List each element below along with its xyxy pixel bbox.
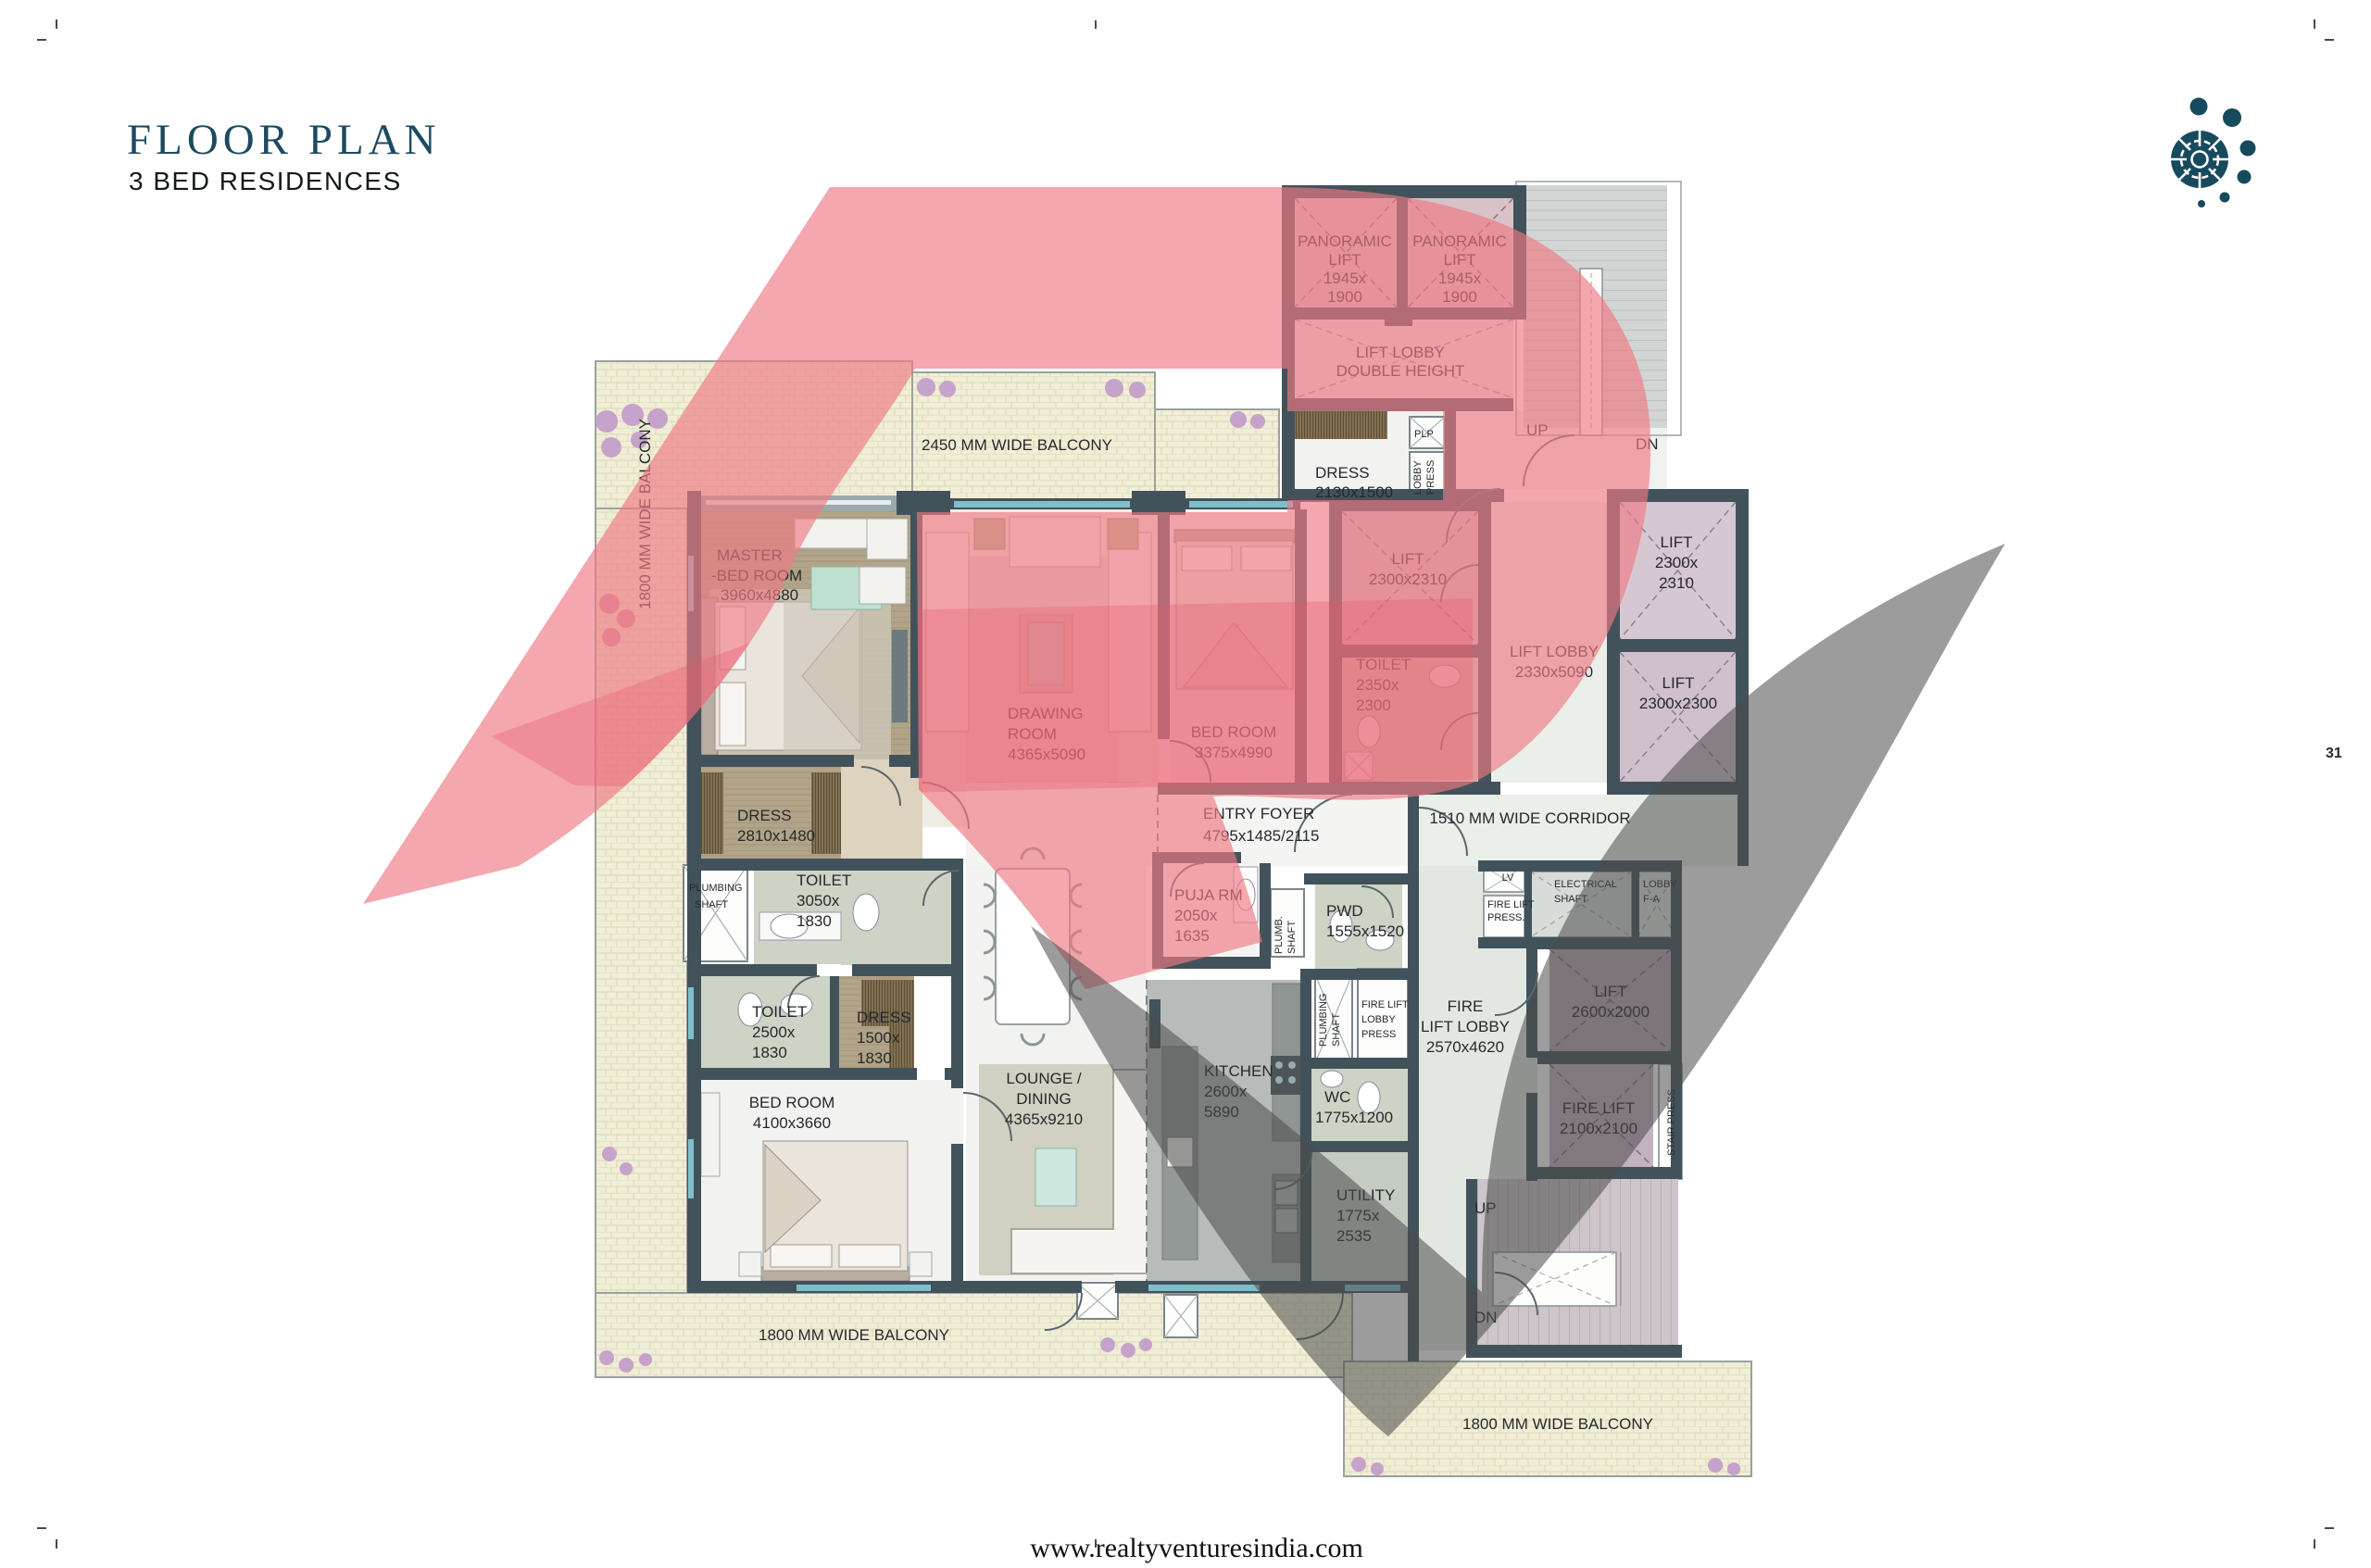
- svg-text:LOBBY: LOBBY: [1361, 1014, 1396, 1025]
- svg-text:2810x1480: 2810x1480: [737, 827, 815, 845]
- svg-text:PWD: PWD: [1326, 902, 1363, 920]
- svg-text:1500x: 1500x: [857, 1029, 900, 1047]
- svg-text:2570x4620: 2570x4620: [1426, 1038, 1504, 1056]
- svg-text:3050x: 3050x: [797, 892, 840, 909]
- svg-text:DRESS: DRESS: [857, 1009, 911, 1026]
- svg-text:www.realtyventuresindia.com: www.realtyventuresindia.com: [1030, 1533, 1363, 1563]
- svg-text:3 BED RESIDENCES: 3 BED RESIDENCES: [129, 167, 402, 195]
- svg-text:LIFT LOBBY: LIFT LOBBY: [1421, 1018, 1510, 1035]
- svg-text:2310: 2310: [1659, 574, 1694, 592]
- svg-text:BED ROOM: BED ROOM: [749, 1094, 835, 1111]
- svg-text:TOILET: TOILET: [752, 1003, 807, 1021]
- svg-text:PRESS: PRESS: [1425, 460, 1436, 495]
- svg-text:LV: LV: [1502, 872, 1514, 884]
- svg-text:SHAFT: SHAFT: [1286, 921, 1298, 954]
- svg-text:31: 31: [2326, 746, 2342, 761]
- svg-text:PRESS.: PRESS.: [1487, 912, 1524, 923]
- svg-text:2500x: 2500x: [752, 1023, 796, 1041]
- svg-text:DRESS: DRESS: [1315, 464, 1370, 482]
- svg-text:2450 MM WIDE BALCONY: 2450 MM WIDE BALCONY: [922, 436, 1112, 454]
- svg-text:PLP: PLP: [1414, 429, 1434, 440]
- svg-text:SHAFT: SHAFT: [695, 899, 728, 910]
- svg-text:LOUNGE /: LOUNGE /: [1006, 1070, 1082, 1087]
- svg-text:LIFT: LIFT: [1661, 533, 1693, 551]
- svg-text:2300x: 2300x: [1655, 554, 1699, 571]
- svg-text:LOBBY: LOBBY: [1412, 460, 1424, 495]
- svg-text:DRESS: DRESS: [737, 807, 792, 824]
- svg-text:FIRE LIFT: FIRE LIFT: [1487, 899, 1535, 910]
- svg-text:1830: 1830: [857, 1049, 892, 1067]
- svg-text:TOILET: TOILET: [797, 872, 851, 889]
- svg-text:WC: WC: [1324, 1088, 1350, 1106]
- svg-text:LIFT: LIFT: [1662, 674, 1695, 692]
- svg-text:FIRE LIFT: FIRE LIFT: [1361, 999, 1409, 1010]
- svg-text:1555x1520: 1555x1520: [1326, 922, 1404, 940]
- svg-text:1775x1200: 1775x1200: [1315, 1109, 1393, 1126]
- svg-text:4365x9210: 4365x9210: [1005, 1110, 1083, 1128]
- svg-text:1510 MM WIDE CORRIDOR: 1510 MM WIDE CORRIDOR: [1429, 809, 1630, 827]
- svg-text:1830: 1830: [752, 1044, 787, 1061]
- svg-text:PLUMB.: PLUMB.: [1273, 916, 1285, 954]
- svg-text:2300x2300: 2300x2300: [1639, 695, 1717, 712]
- svg-text:PRESS: PRESS: [1361, 1029, 1396, 1040]
- svg-text:SHAFT: SHAFT: [1331, 1013, 1342, 1047]
- svg-text:FLOOR PLAN: FLOOR PLAN: [127, 116, 441, 164]
- svg-text:2130x1500: 2130x1500: [1315, 483, 1393, 501]
- svg-text:1800 MM WIDE BALCONY: 1800 MM WIDE BALCONY: [1462, 1415, 1653, 1433]
- svg-text:4100x3660: 4100x3660: [753, 1114, 831, 1132]
- svg-text:1800 MM WIDE BALCONY: 1800 MM WIDE BALCONY: [759, 1326, 949, 1344]
- svg-text:1830: 1830: [797, 912, 832, 930]
- svg-text:PLUMBING: PLUMBING: [689, 883, 742, 894]
- svg-text:DINING: DINING: [1016, 1090, 1072, 1108]
- svg-text:FIRE: FIRE: [1448, 997, 1484, 1015]
- svg-text:PLUMBING: PLUMBING: [1318, 994, 1329, 1047]
